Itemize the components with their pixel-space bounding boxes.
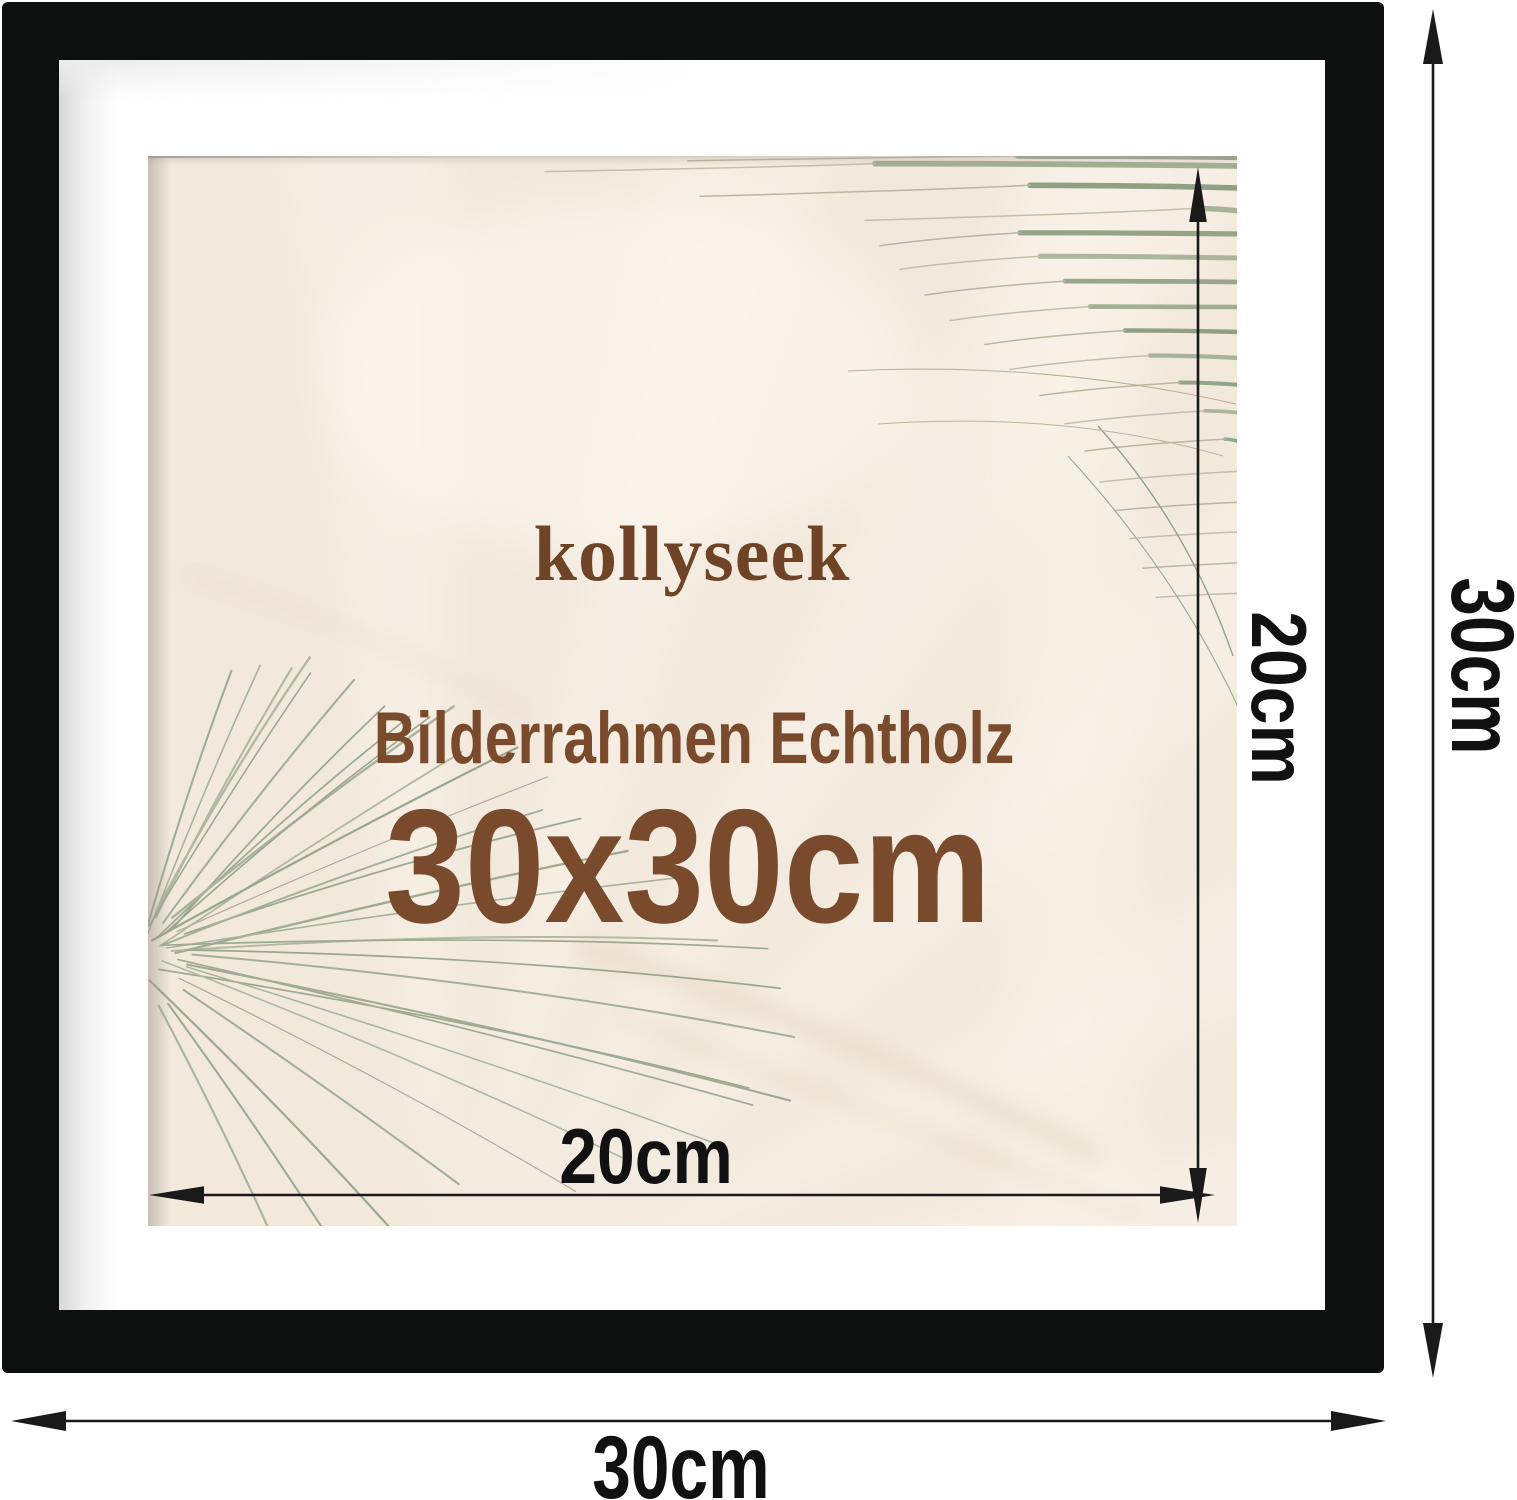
svg-text:30cm: 30cm	[592, 1418, 770, 1500]
svg-text:30cm: 30cm	[1433, 577, 1517, 755]
svg-text:20cm: 20cm	[559, 1114, 733, 1200]
svg-text:20cm: 20cm	[1235, 611, 1321, 785]
